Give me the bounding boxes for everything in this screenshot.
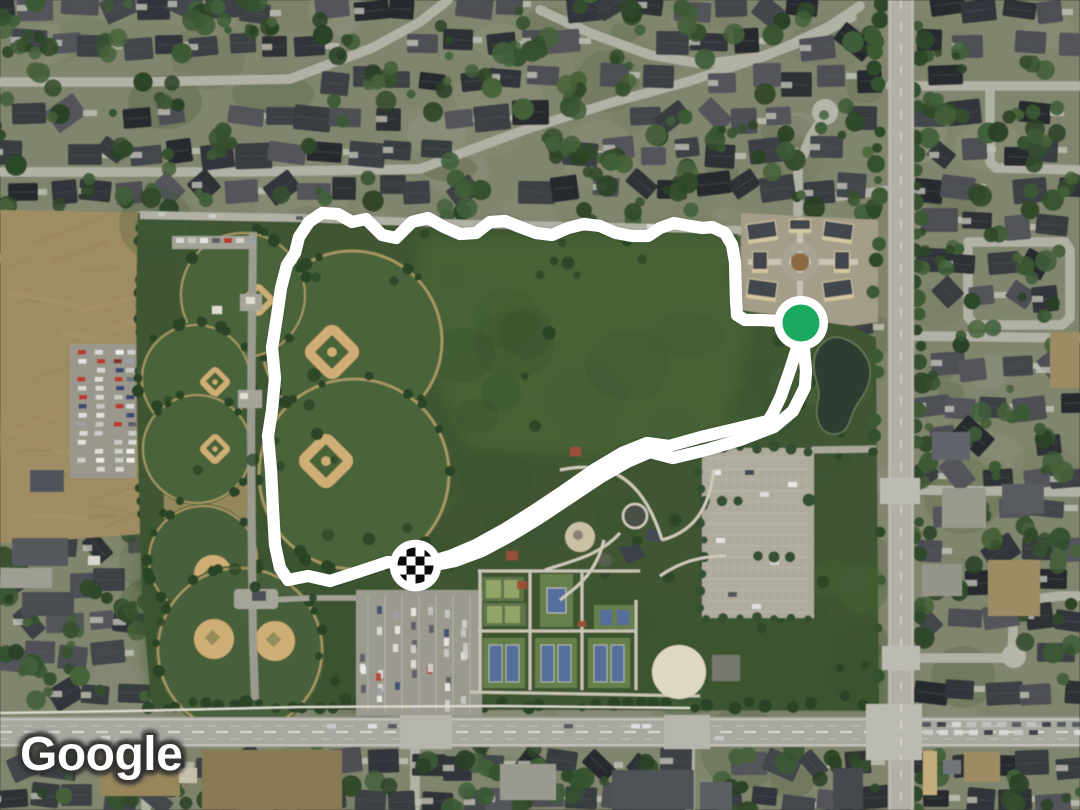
svg-text:Google: Google [20,728,182,781]
